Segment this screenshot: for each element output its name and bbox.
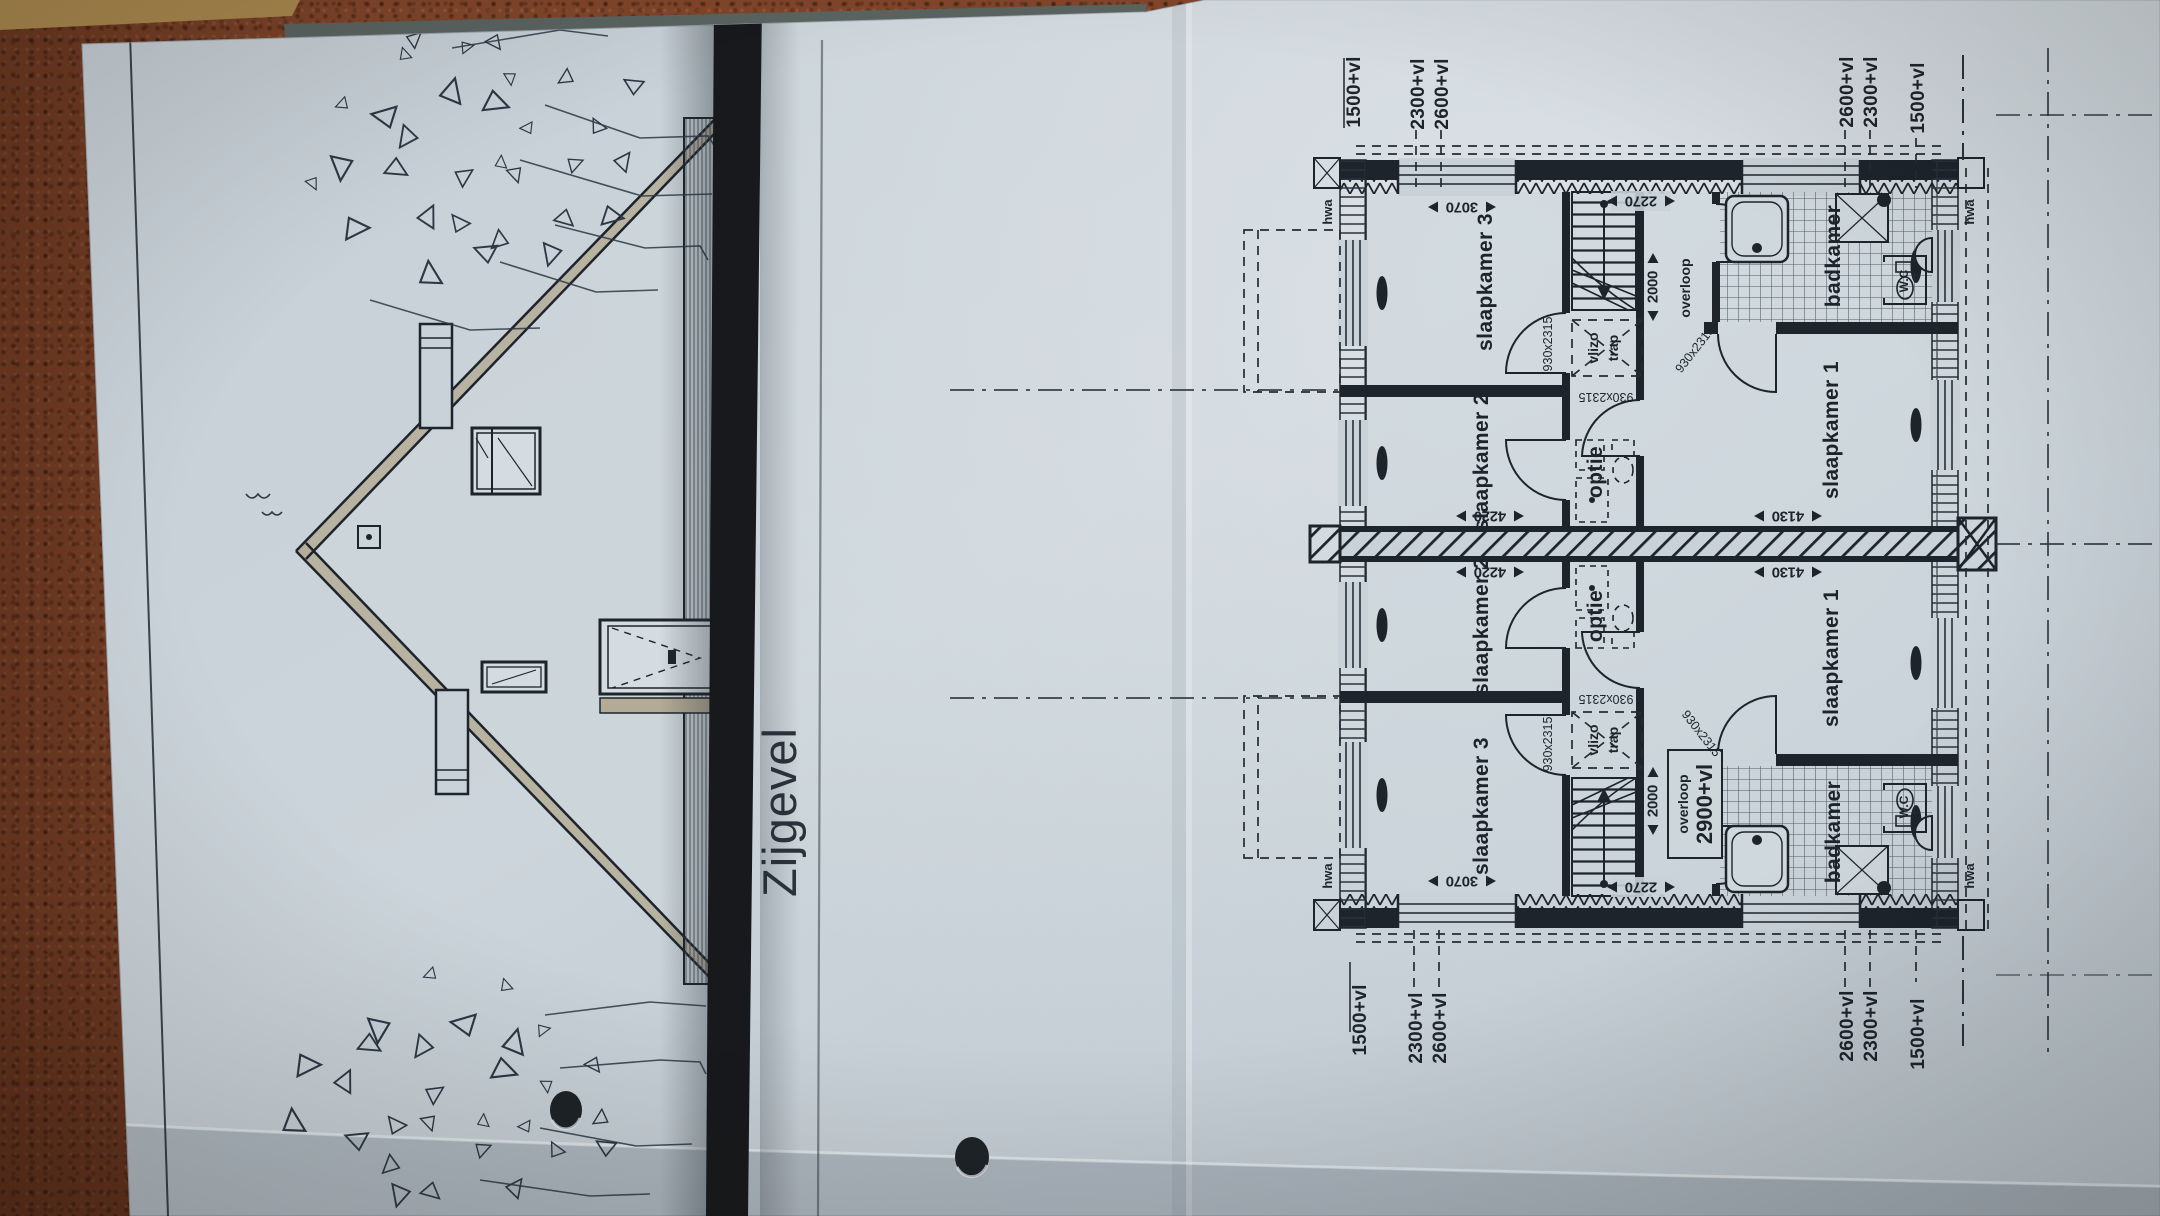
blueprint-sheet-svg: Zijgevel [0, 0, 2160, 1216]
photo-of-blueprint: Zijgevel [0, 0, 2160, 1216]
vignette [0, 0, 2160, 1216]
